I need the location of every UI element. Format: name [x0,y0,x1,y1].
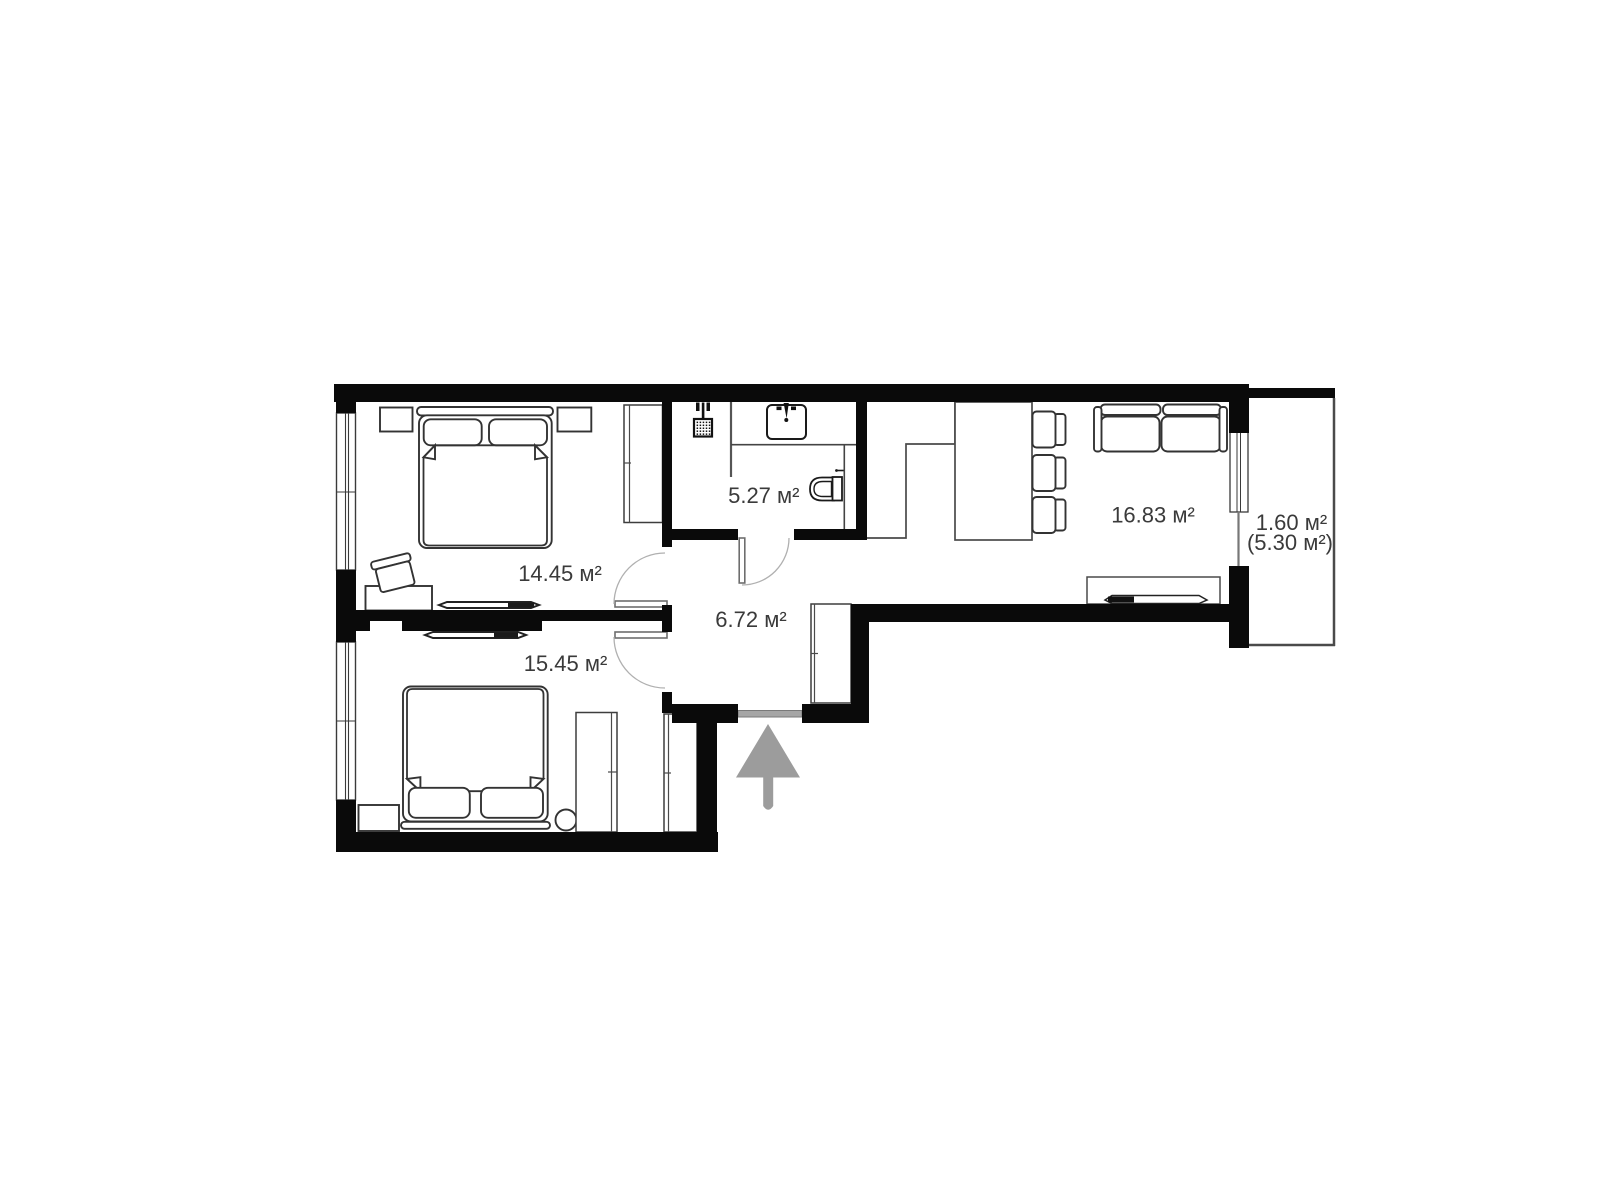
svg-text:6.72 м²: 6.72 м² [715,607,786,632]
svg-text:(5.30 м²): (5.30 м²) [1247,530,1333,555]
svg-text:15.45 м²: 15.45 м² [524,651,608,676]
svg-text:14.45 м²: 14.45 м² [518,561,602,586]
svg-text:16.83 м²: 16.83 м² [1111,503,1195,528]
svg-text:5.27 м²: 5.27 м² [728,483,799,508]
